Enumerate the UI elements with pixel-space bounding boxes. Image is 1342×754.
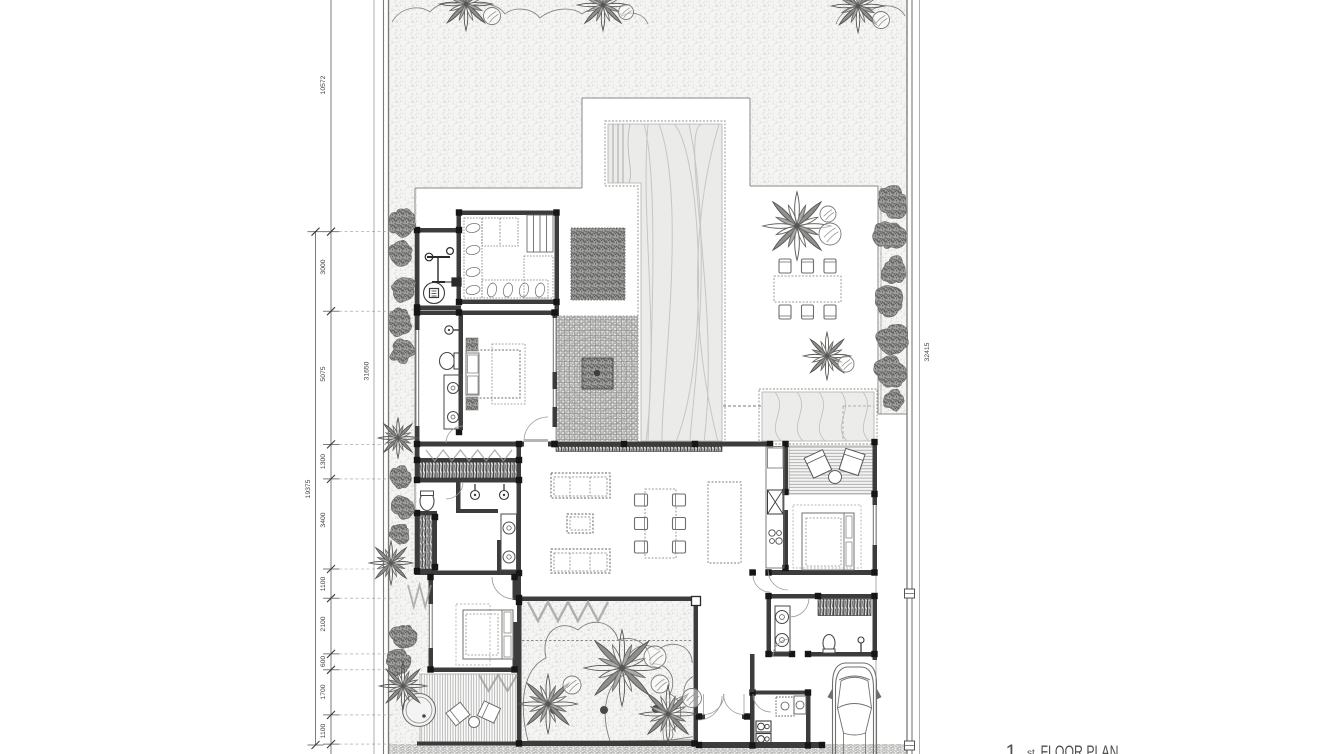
svg-text:5075: 5075 — [320, 366, 327, 381]
svg-text:10572: 10572 — [320, 75, 327, 94]
svg-text:31650: 31650 — [364, 361, 371, 380]
svg-text:1: 1 — [1006, 742, 1017, 754]
svg-text:st: st — [1027, 748, 1035, 754]
svg-text:600: 600 — [320, 656, 327, 668]
svg-text:19375: 19375 — [305, 479, 312, 498]
svg-text:FLOOR PLAN: FLOOR PLAN — [1041, 742, 1119, 754]
svg-text:3400: 3400 — [320, 512, 327, 527]
svg-text:1100: 1100 — [320, 576, 327, 591]
svg-text:1700: 1700 — [320, 684, 327, 699]
svg-text:2100: 2100 — [320, 616, 327, 631]
svg-text:1100: 1100 — [320, 723, 327, 738]
svg-text:1300: 1300 — [320, 454, 327, 469]
svg-text:3000: 3000 — [320, 259, 327, 274]
svg-text:32415: 32415 — [924, 342, 931, 361]
